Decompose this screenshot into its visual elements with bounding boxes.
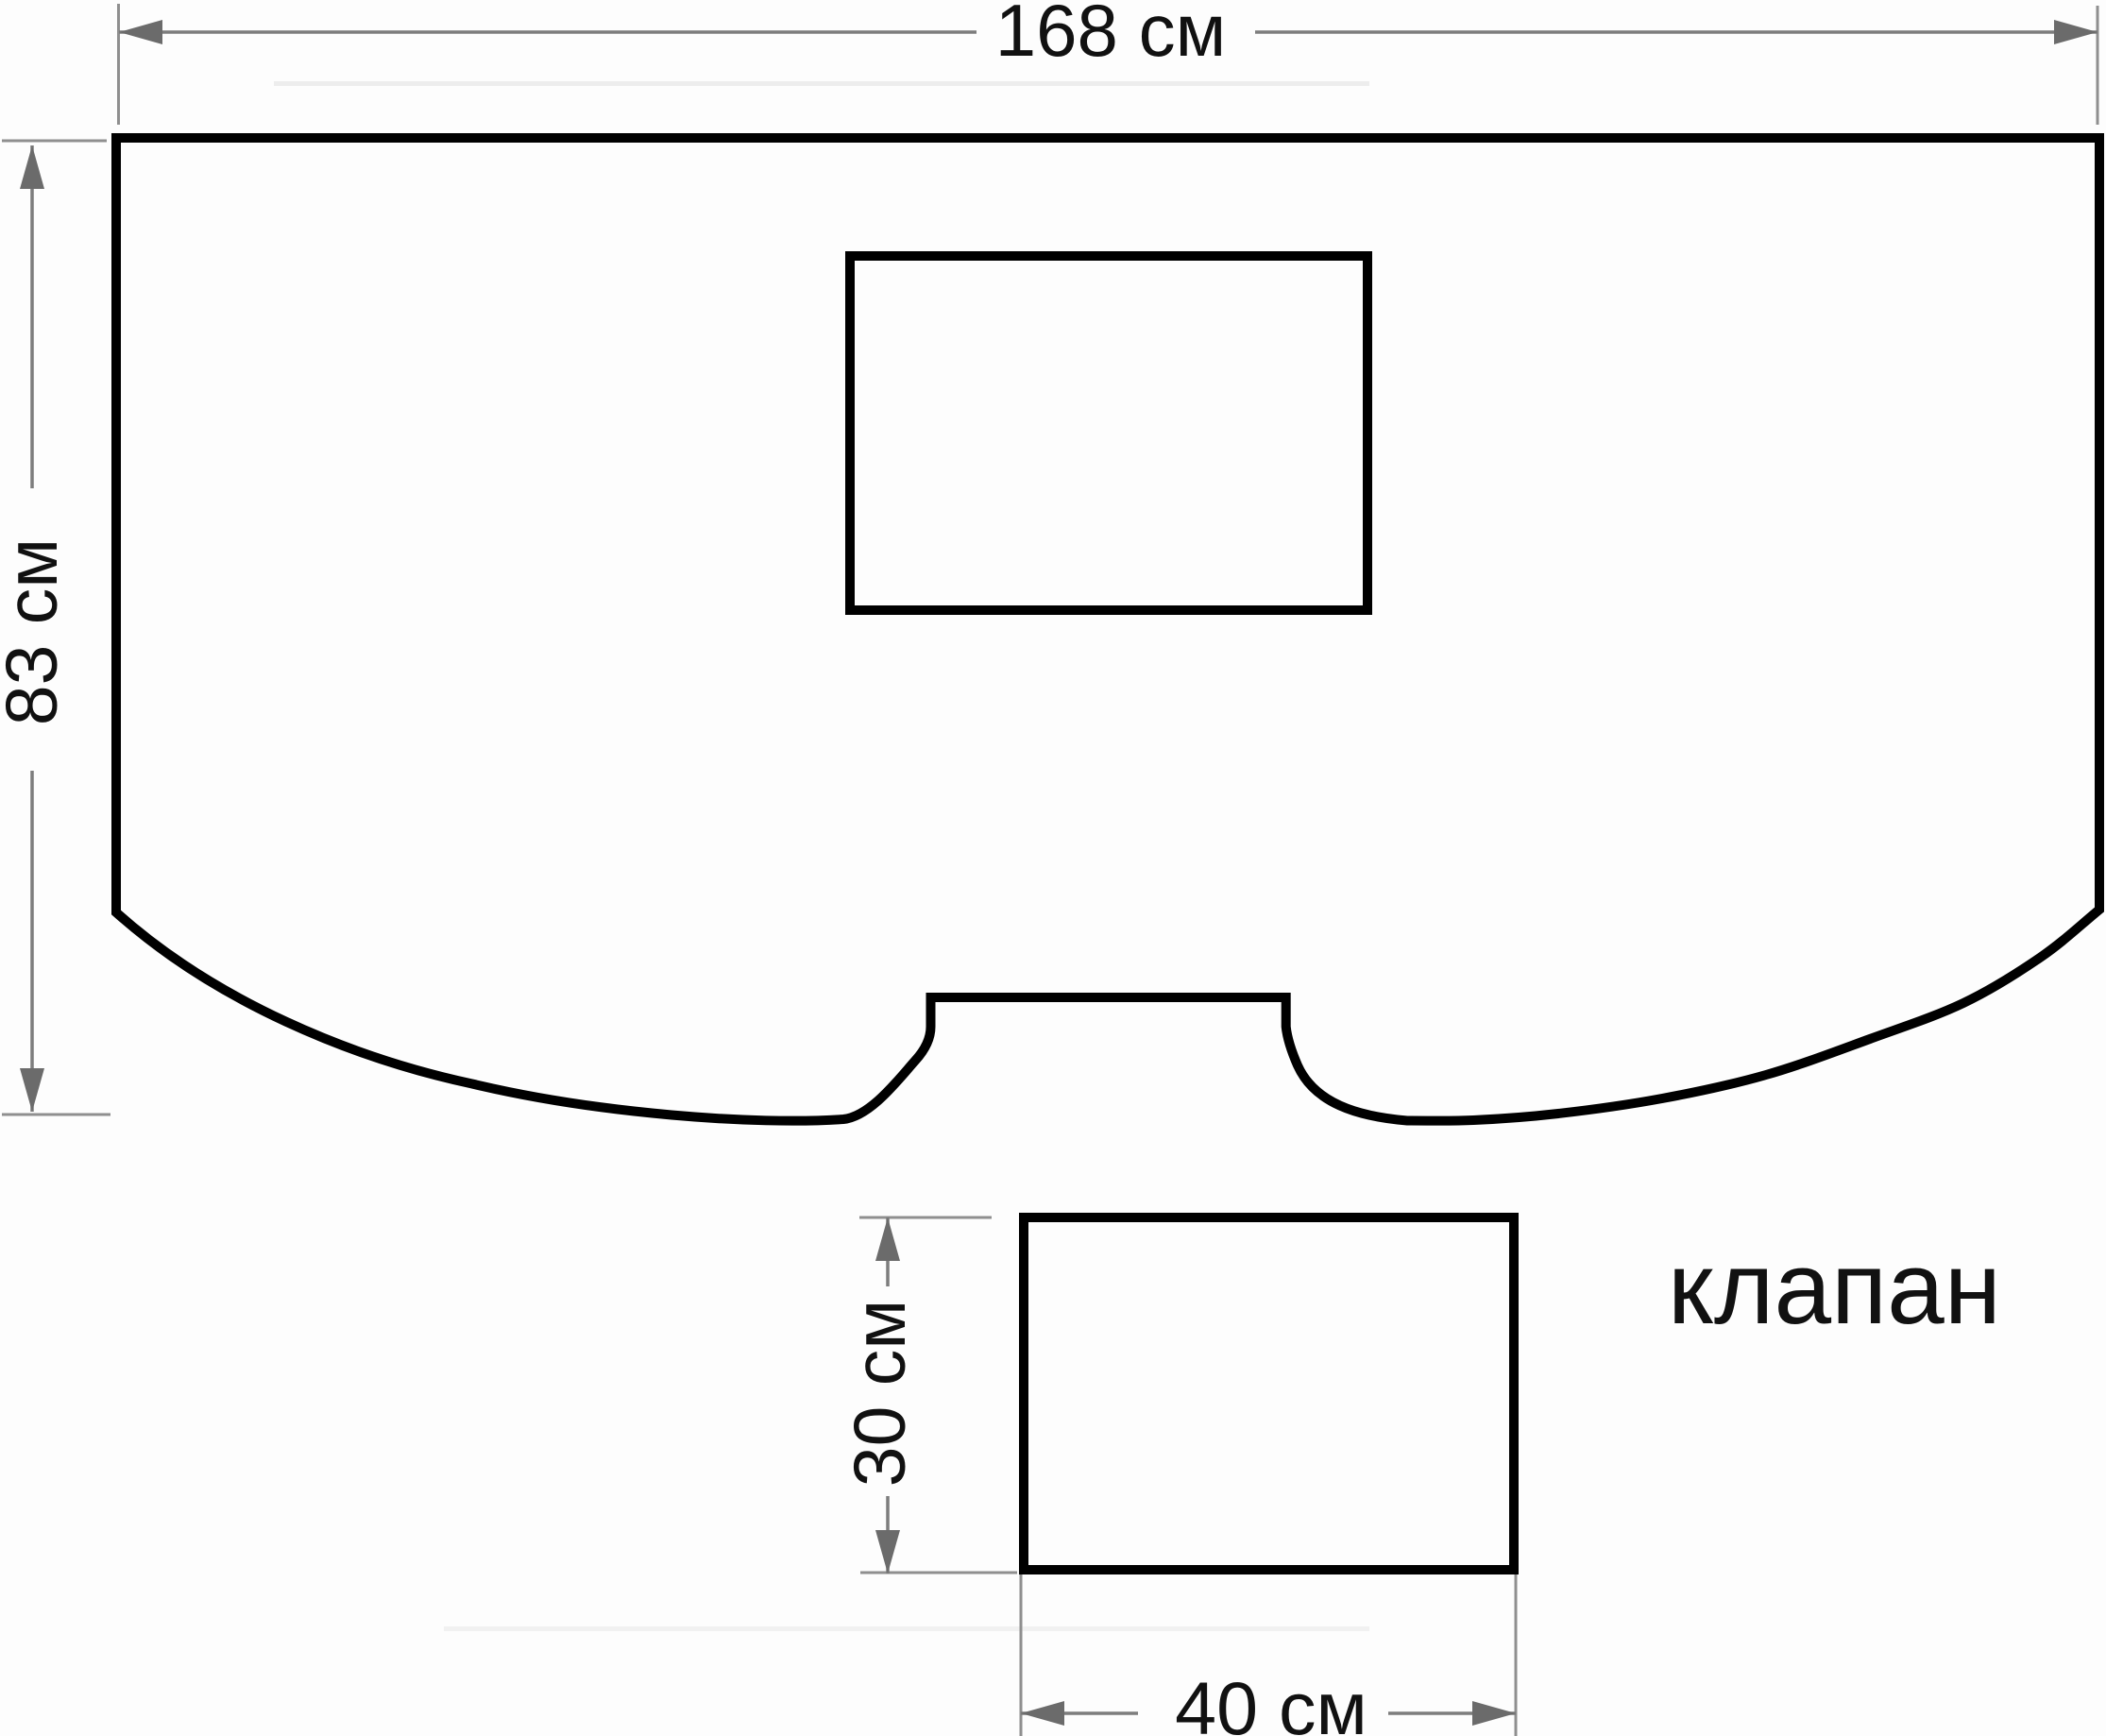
svg-text:40 см: 40 см	[1175, 1666, 1367, 1736]
svg-text:клапан: клапан	[1668, 1231, 2001, 1346]
svg-text:83 см: 83 см	[0, 538, 73, 725]
svg-text:30 см: 30 см	[840, 1300, 921, 1487]
svg-text:168 см: 168 см	[995, 0, 1226, 72]
